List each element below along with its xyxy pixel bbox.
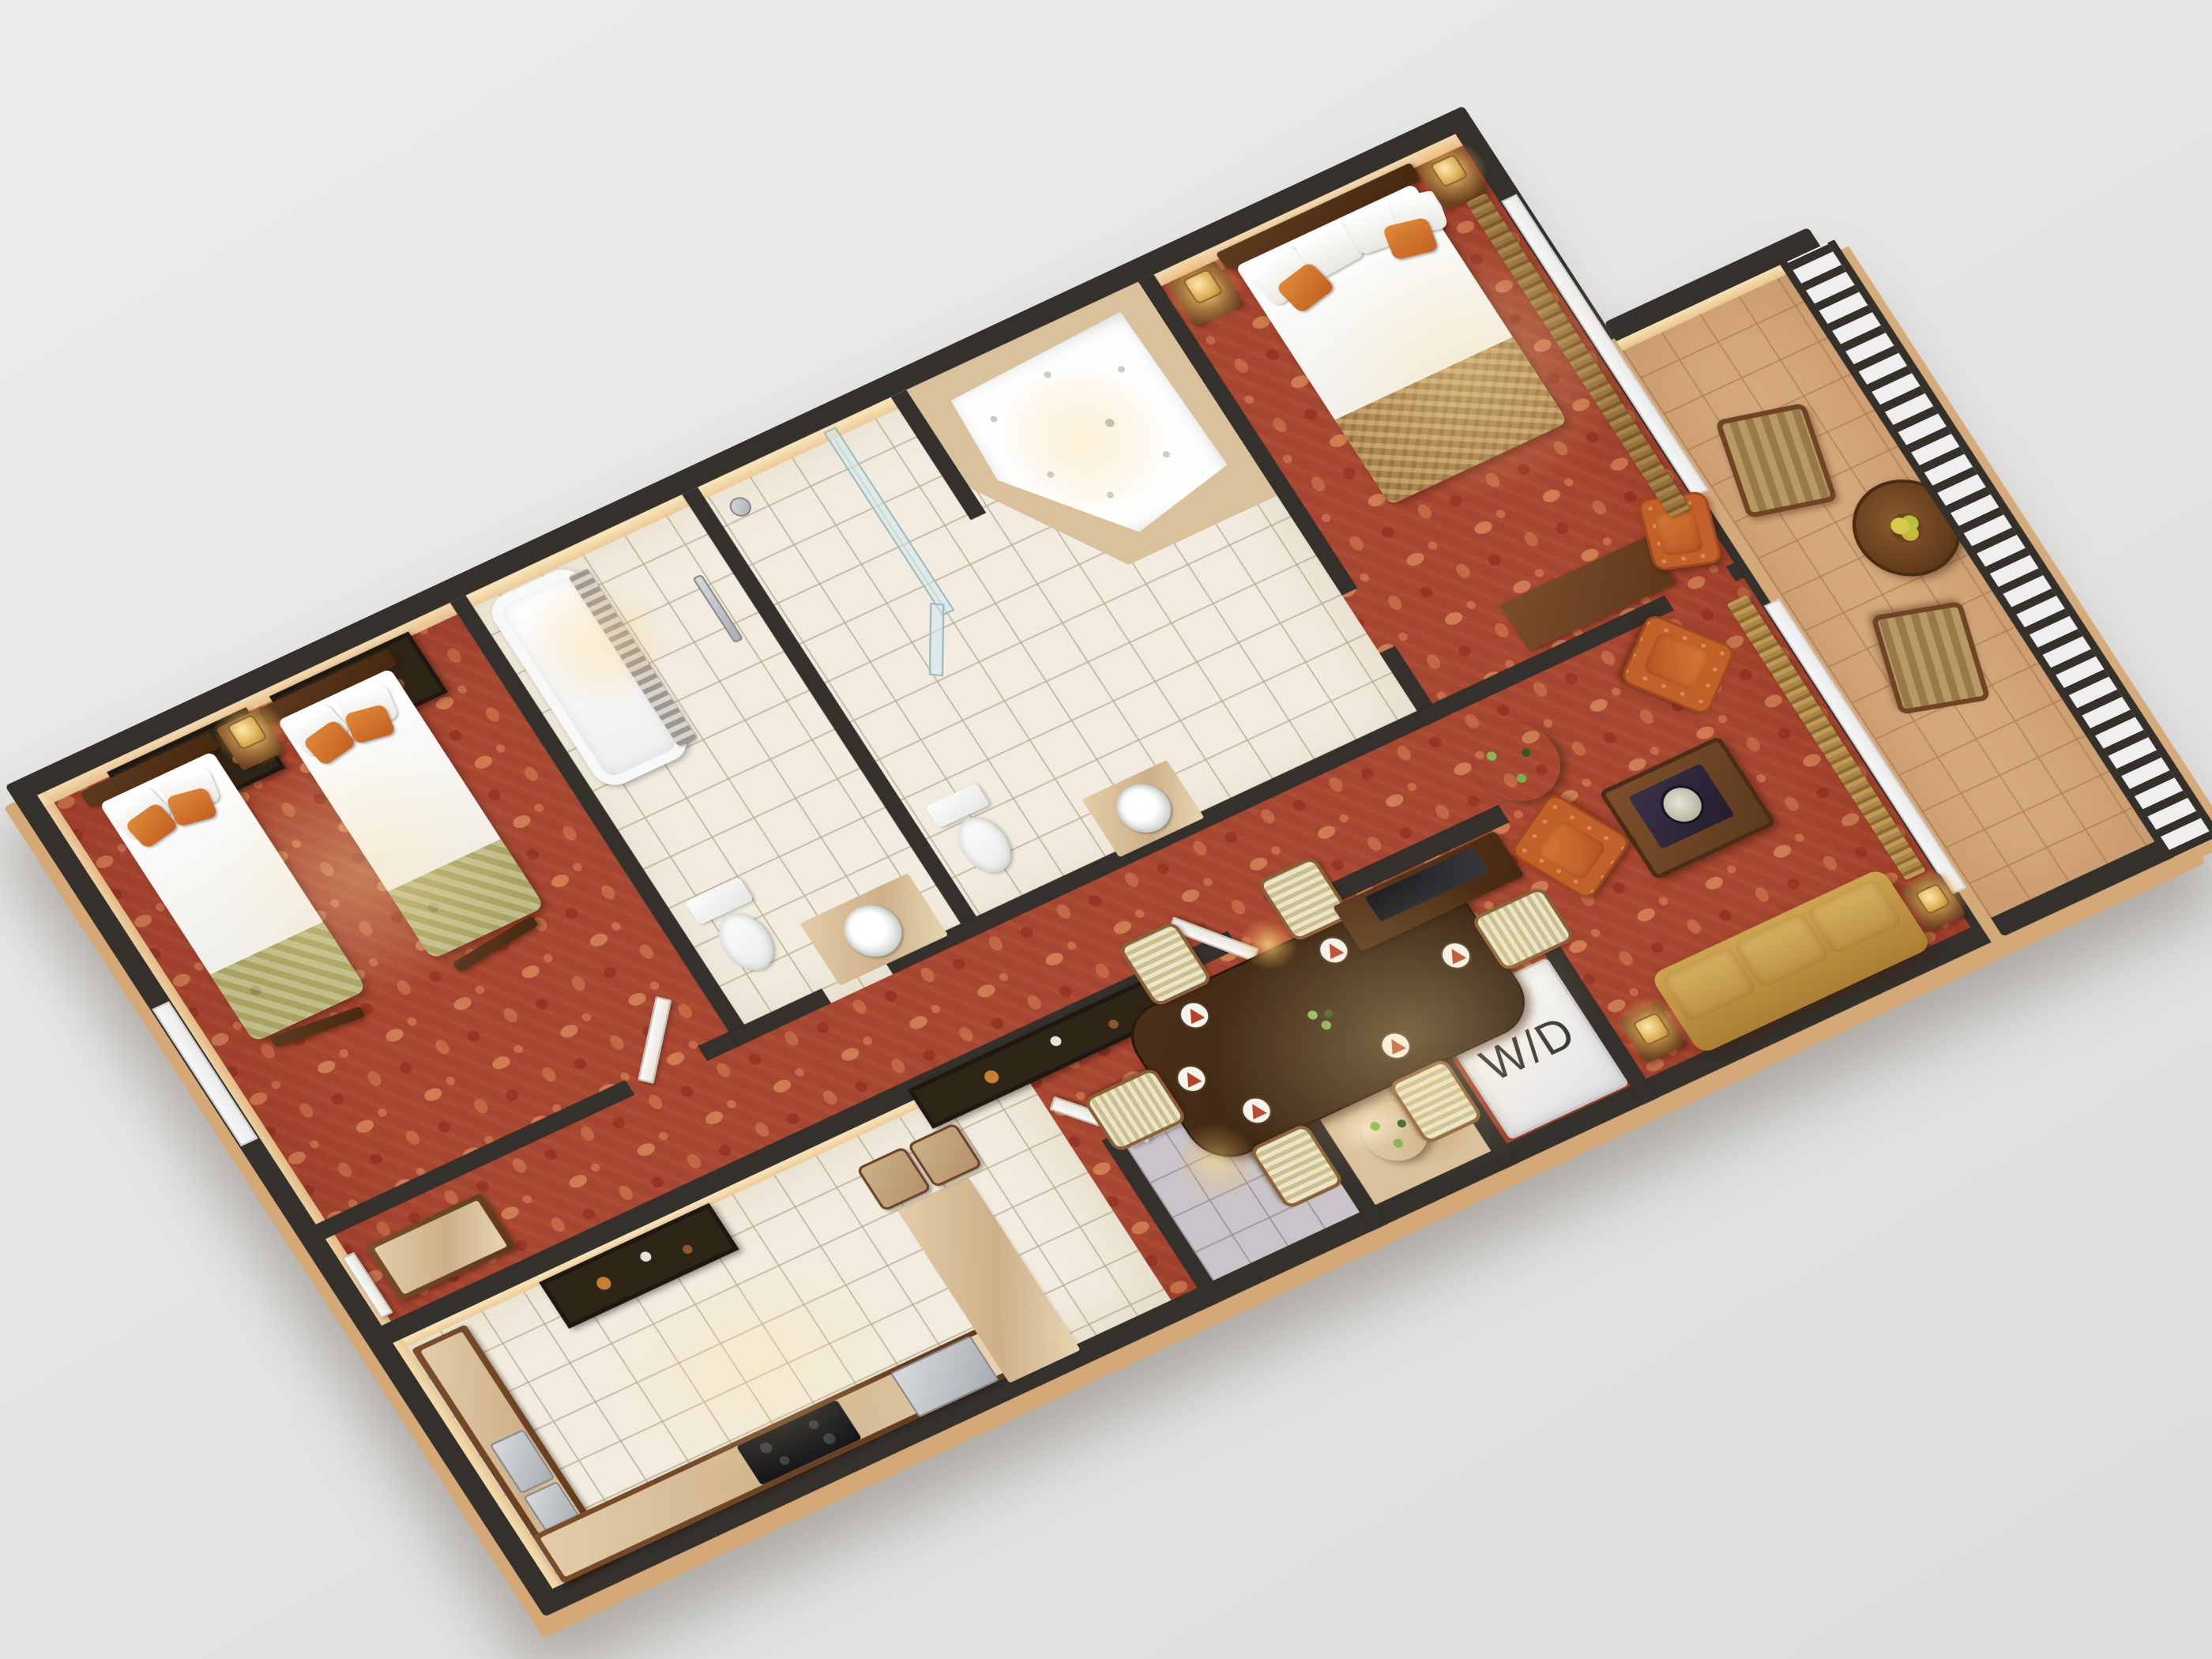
floor-plan: W/D bbox=[5, 10, 2207, 1616]
render-background: W/D bbox=[0, 0, 2212, 1659]
fruit-bowl bbox=[1884, 509, 1929, 547]
shower-glass-door bbox=[929, 603, 945, 676]
